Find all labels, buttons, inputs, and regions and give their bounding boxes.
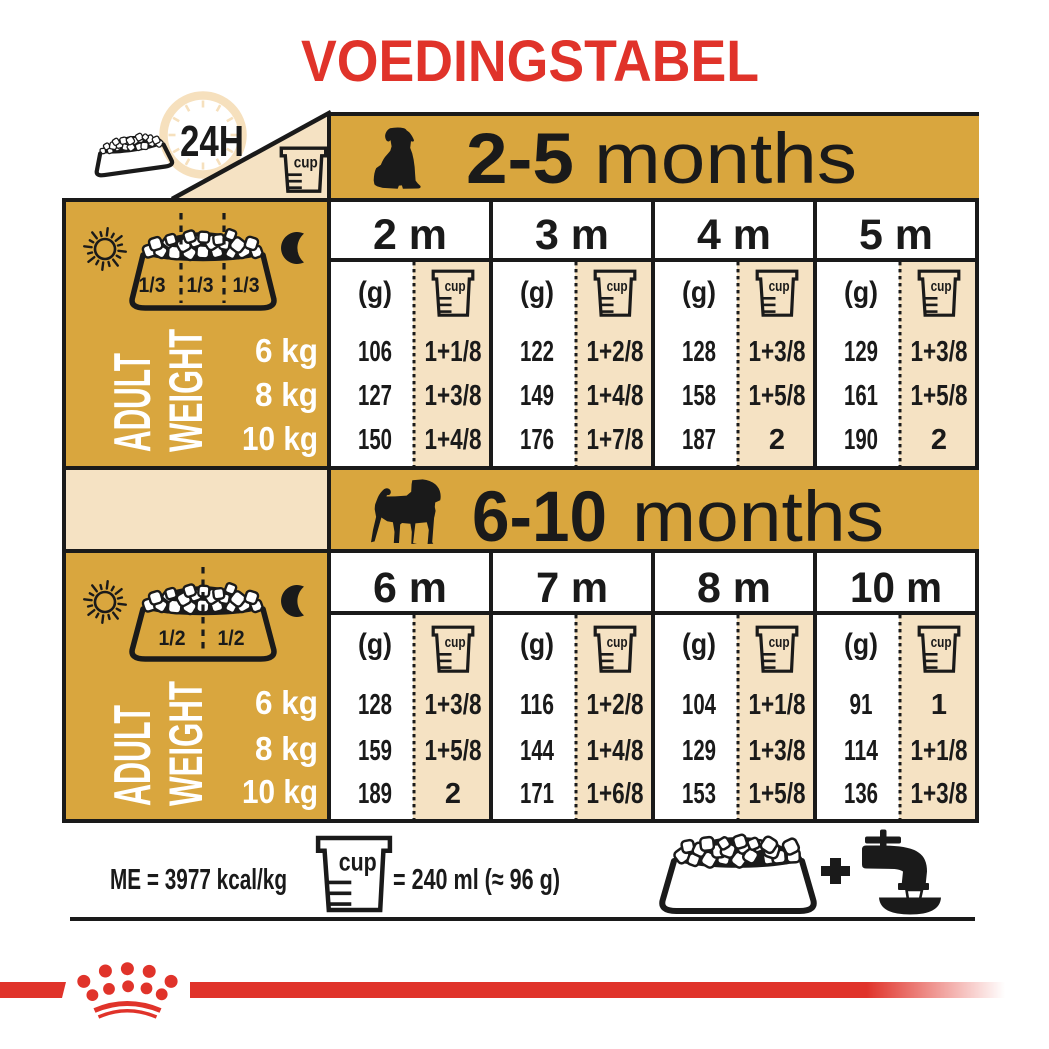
svg-text:6 m: 6 m — [373, 564, 447, 612]
svg-text:6-10: 6-10 — [472, 478, 607, 557]
svg-text:129: 129 — [682, 735, 716, 767]
svg-text:2 m: 2 m — [373, 211, 447, 259]
svg-text:cup: cup — [607, 278, 628, 295]
svg-text:127: 127 — [358, 380, 392, 412]
svg-text:2: 2 — [769, 424, 785, 456]
svg-text:153: 153 — [682, 778, 716, 810]
svg-text:1+5/8: 1+5/8 — [425, 735, 482, 767]
svg-text:1/2: 1/2 — [218, 627, 245, 650]
svg-text:(g): (g) — [520, 628, 554, 661]
svg-text:months: months — [632, 478, 884, 557]
svg-text:150: 150 — [358, 424, 392, 456]
svg-text:190: 190 — [844, 424, 878, 456]
svg-text:6 kg: 6 kg — [255, 684, 318, 721]
svg-text:1+1/8: 1+1/8 — [749, 689, 806, 721]
svg-text:1+5/8: 1+5/8 — [749, 778, 806, 810]
svg-text:128: 128 — [358, 689, 392, 721]
svg-text:cup: cup — [931, 278, 952, 295]
svg-text:WEIGHT: WEIGHT — [159, 329, 212, 452]
svg-text:cup: cup — [445, 278, 466, 295]
svg-text:(g): (g) — [682, 276, 716, 309]
svg-text:91: 91 — [850, 689, 873, 721]
svg-text:6 kg: 6 kg — [255, 332, 318, 369]
svg-text:122: 122 — [520, 336, 554, 368]
svg-text:5 m: 5 m — [859, 211, 933, 259]
svg-text:1+3/8: 1+3/8 — [749, 336, 806, 368]
svg-text:1/3: 1/3 — [187, 274, 214, 297]
svg-text:114: 114 — [844, 735, 878, 767]
svg-text:1+3/8: 1+3/8 — [911, 778, 968, 810]
svg-text:158: 158 — [682, 380, 716, 412]
svg-text:1+7/8: 1+7/8 — [587, 424, 644, 456]
svg-text:= 240 ml (≈ 96 g): = 240 ml (≈ 96 g) — [393, 864, 560, 896]
svg-text:cup: cup — [769, 634, 790, 651]
svg-text:2: 2 — [931, 424, 947, 456]
svg-text:cup: cup — [931, 634, 952, 651]
svg-text:1+5/8: 1+5/8 — [911, 380, 968, 412]
svg-text:7 m: 7 m — [536, 564, 608, 612]
svg-text:ADULT: ADULT — [104, 353, 162, 452]
svg-text:2-5: 2-5 — [466, 120, 574, 199]
svg-text:1+1/8: 1+1/8 — [911, 735, 968, 767]
svg-text:cup: cup — [607, 634, 628, 651]
svg-text:8 kg: 8 kg — [255, 376, 318, 413]
svg-text:(g): (g) — [520, 276, 554, 309]
svg-text:128: 128 — [682, 336, 716, 368]
svg-text:1+2/8: 1+2/8 — [587, 689, 644, 721]
svg-text:(g): (g) — [358, 628, 392, 661]
svg-text:(g): (g) — [682, 628, 716, 661]
svg-text:106: 106 — [358, 336, 392, 368]
svg-text:WEIGHT: WEIGHT — [159, 681, 212, 806]
svg-text:ME = 3977 kcal/kg: ME = 3977 kcal/kg — [110, 864, 287, 896]
svg-text:4 m: 4 m — [697, 211, 771, 259]
svg-text:1: 1 — [931, 689, 947, 721]
svg-text:1+3/8: 1+3/8 — [749, 735, 806, 767]
svg-text:months: months — [594, 120, 857, 199]
svg-text:144: 144 — [520, 735, 554, 767]
svg-text:24H: 24H — [180, 117, 244, 166]
svg-text:1+2/8: 1+2/8 — [587, 336, 644, 368]
svg-text:cup: cup — [294, 155, 318, 172]
svg-text:(g): (g) — [844, 628, 878, 661]
svg-text:3 m: 3 m — [535, 211, 609, 259]
svg-text:1+4/8: 1+4/8 — [587, 735, 644, 767]
svg-text:(g): (g) — [358, 276, 392, 309]
svg-text:cup: cup — [339, 847, 377, 877]
svg-text:2: 2 — [445, 778, 461, 810]
svg-text:1+5/8: 1+5/8 — [749, 380, 806, 412]
svg-text:(g): (g) — [844, 276, 878, 309]
svg-text:116: 116 — [520, 689, 554, 721]
svg-text:8 m: 8 m — [697, 564, 771, 612]
svg-text:ADULT: ADULT — [104, 705, 162, 806]
svg-text:8 kg: 8 kg — [255, 730, 318, 767]
svg-text:149: 149 — [520, 380, 554, 412]
svg-text:136: 136 — [844, 778, 878, 810]
svg-text:1+4/8: 1+4/8 — [425, 424, 482, 456]
svg-text:VOEDINGSTABEL: VOEDINGSTABEL — [301, 29, 759, 94]
svg-text:1/3: 1/3 — [233, 274, 260, 297]
svg-text:1+6/8: 1+6/8 — [587, 778, 644, 810]
svg-text:1+1/8: 1+1/8 — [425, 336, 482, 368]
svg-text:cup: cup — [769, 278, 790, 295]
svg-text:1/2: 1/2 — [159, 627, 186, 650]
svg-text:10 m: 10 m — [850, 564, 942, 612]
svg-text:176: 176 — [520, 424, 554, 456]
svg-text:129: 129 — [844, 336, 878, 368]
svg-text:1+3/8: 1+3/8 — [911, 336, 968, 368]
svg-text:171: 171 — [520, 778, 554, 810]
svg-text:10 kg: 10 kg — [242, 420, 318, 457]
svg-text:159: 159 — [358, 735, 392, 767]
svg-text:104: 104 — [682, 689, 716, 721]
svg-text:161: 161 — [844, 380, 878, 412]
svg-text:1+3/8: 1+3/8 — [425, 380, 482, 412]
svg-text:1+4/8: 1+4/8 — [587, 380, 644, 412]
svg-text:10 kg: 10 kg — [242, 773, 318, 810]
svg-text:189: 189 — [358, 778, 392, 810]
svg-text:cup: cup — [445, 634, 466, 651]
svg-text:187: 187 — [682, 424, 716, 456]
svg-text:1/3: 1/3 — [139, 274, 166, 297]
svg-text:1+3/8: 1+3/8 — [425, 689, 482, 721]
